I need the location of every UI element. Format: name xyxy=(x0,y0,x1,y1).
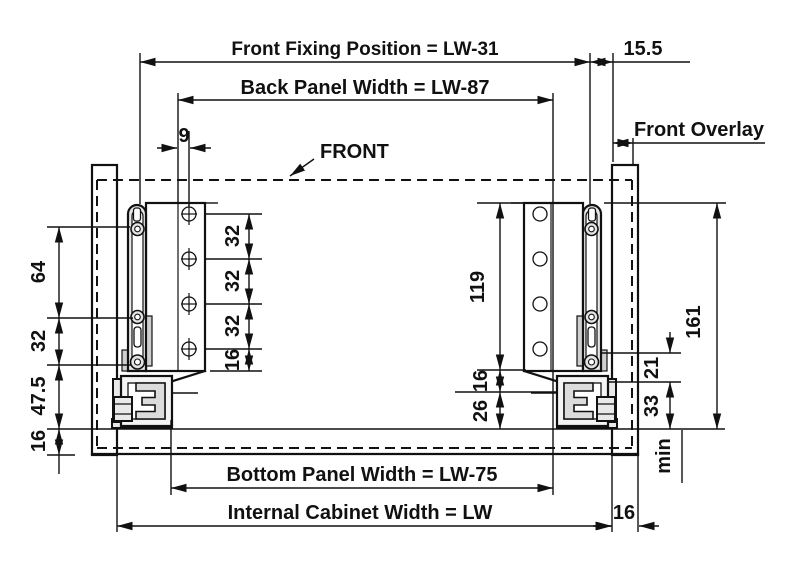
dim-21-label: 21 xyxy=(641,357,663,379)
front-label: FRONT xyxy=(320,141,389,163)
hole-gap2-label: 32 xyxy=(222,270,244,292)
dim-161-label: 161 xyxy=(683,305,705,338)
dim-119-label: 119 xyxy=(467,271,489,303)
hole-gap3-label: 32 xyxy=(222,315,244,337)
front-gap-label: 15.5 xyxy=(624,38,663,60)
hole-gap1-label: 32 xyxy=(222,225,244,247)
round-hole-icon xyxy=(533,252,547,266)
left-bracket-assembly xyxy=(112,203,218,428)
round-hole-icon xyxy=(533,342,547,356)
front-overlay-label: Front Overlay xyxy=(634,119,765,141)
front-leader-arrow xyxy=(290,159,314,176)
min-label: min xyxy=(653,438,675,474)
front-fixing-position-label: Front Fixing Position = LW-31 xyxy=(231,39,499,60)
dim-16-right-label: 16 xyxy=(470,370,492,392)
hole-gap4-label: 16 xyxy=(222,349,244,371)
dim-47-5-label: 47.5 xyxy=(28,377,50,416)
right-bracket-assembly xyxy=(511,203,617,428)
bottom-panel-width-label: Bottom Panel Width = LW-75 xyxy=(226,464,497,486)
dim-33-label: 33 xyxy=(641,395,663,417)
dim-26-label: 26 xyxy=(470,400,492,422)
drawer-installation-diagram: Front Fixing Position = LW-31 15.5 Back … xyxy=(0,0,800,577)
round-hole-icon xyxy=(533,207,547,221)
dim-16-left-label: 16 xyxy=(28,430,50,452)
dim-64-label: 64 xyxy=(28,260,50,283)
dim-32-left-label: 32 xyxy=(28,330,50,352)
internal-cabinet-width-label: Internal Cabinet Width = LW xyxy=(228,502,493,524)
wall-thickness-label: 16 xyxy=(613,502,635,524)
diagram-canvas: Front Fixing Position = LW-31 15.5 Back … xyxy=(0,0,800,577)
round-hole-icon xyxy=(533,297,547,311)
back-panel-width-label: Back Panel Width = LW-87 xyxy=(241,77,490,99)
hole-offset-label: 9 xyxy=(178,125,189,147)
